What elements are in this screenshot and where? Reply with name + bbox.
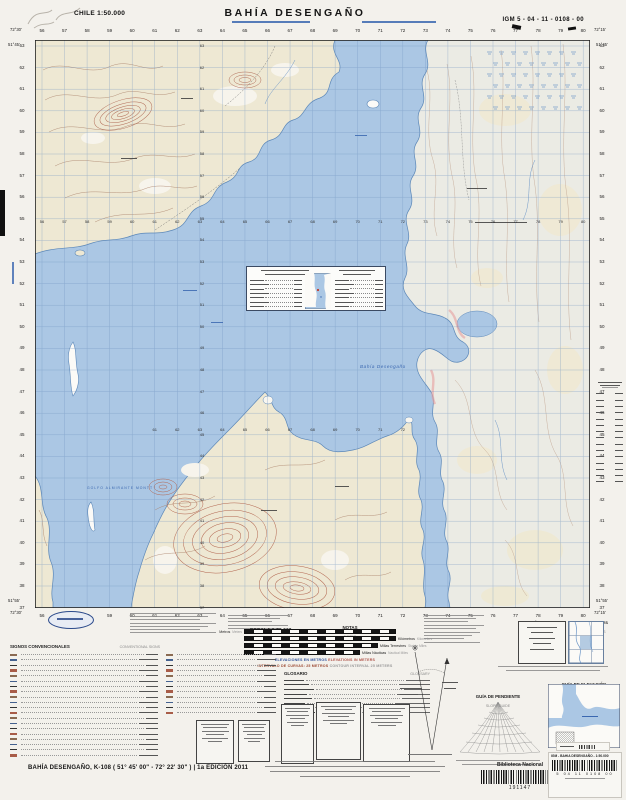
margin-note-right	[362, 21, 436, 23]
margin-note-left	[232, 21, 310, 23]
grid-number: 40	[599, 541, 604, 546]
grid-number: 49	[200, 346, 204, 350]
grid-number: 61	[153, 428, 157, 432]
grid-number: 54	[599, 238, 604, 243]
grid-number: 71	[378, 29, 383, 34]
grid-number: 61	[200, 87, 204, 91]
grid-number: 60	[599, 109, 604, 114]
grid-number: 57	[19, 173, 24, 178]
grid-number: 68	[310, 614, 315, 619]
grid-number: 62	[175, 428, 179, 432]
corner-coord: 72°30'	[10, 610, 22, 615]
grid-number: 66	[265, 220, 269, 224]
legend-column	[10, 652, 158, 758]
grid-number: 60	[130, 220, 134, 224]
igm-sticker: IGM - BAHIA DESENGAÑO - 1:50.000 5 04 11…	[548, 752, 622, 798]
grid-number: 38	[599, 584, 604, 589]
grid-number: 44	[19, 454, 24, 459]
grid-number: 48	[599, 368, 604, 373]
grid-number: 49	[19, 346, 24, 351]
grid-number: 58	[19, 152, 24, 157]
grid-number: 78	[536, 220, 540, 224]
grid-number: 42	[200, 498, 204, 502]
grid-number: 67	[288, 220, 292, 224]
grid-number: 39	[200, 562, 204, 566]
grid-number: 46	[19, 411, 24, 416]
grid-number: 51	[19, 303, 24, 308]
grid-number: 60	[200, 109, 204, 113]
grid-number: 56	[19, 195, 24, 200]
grid-number: 56	[599, 195, 604, 200]
corner-coord: 72°15'	[594, 27, 606, 32]
grid-number: 38	[200, 584, 204, 588]
grid-number: 69	[333, 428, 337, 432]
grid-number: 46	[200, 411, 204, 415]
grid-number: 59	[200, 130, 204, 134]
conversion-table	[596, 382, 623, 485]
fine-print	[424, 632, 486, 645]
reference-inset-box	[246, 266, 386, 311]
note-box	[281, 704, 314, 764]
igm-logo	[48, 611, 94, 629]
grid-number: 69	[333, 220, 337, 224]
note-box	[238, 720, 270, 762]
corner-coord: 51°55'	[8, 598, 20, 603]
grid-number: 39	[19, 562, 24, 567]
grid-number: 56	[39, 29, 44, 34]
margin-vertical-note	[12, 262, 14, 284]
grid-number: 63	[198, 428, 202, 432]
grid-number: 78	[536, 29, 541, 34]
grid-number: 62	[599, 65, 604, 70]
grid-number: 64	[220, 428, 224, 432]
grid-number: 61	[599, 87, 604, 92]
map-canvas	[35, 40, 590, 608]
grid-number: 58	[85, 220, 89, 224]
sticker-barcode	[552, 760, 618, 771]
corner-coord: 72°30'	[10, 27, 22, 32]
map-area: Bahía Desengaño GOLFO ALMIRANTE MONTT 56…	[35, 40, 590, 608]
grid-number: 79	[558, 29, 563, 34]
grid-number: 44	[200, 454, 204, 458]
grid-number: 48	[19, 368, 24, 373]
grid-number: 66	[265, 29, 270, 34]
grid-number: 47	[200, 390, 204, 394]
grid-number: 41	[200, 519, 204, 523]
grid-number: 41	[599, 519, 604, 524]
grid-number: 54	[200, 238, 204, 242]
grid-number: 45	[19, 433, 24, 438]
publisher-imprint	[130, 613, 218, 635]
grid-number: 57	[200, 174, 204, 178]
grid-number: 74	[446, 220, 450, 224]
grid-number: 51	[200, 303, 204, 307]
grid-number: 54	[19, 238, 24, 243]
corner-coord: 51°45'	[596, 42, 608, 47]
grid-number: 63	[19, 44, 24, 49]
grid-number: 64	[220, 614, 225, 619]
grid-number: 58	[200, 152, 204, 156]
grid-number: 75	[468, 29, 473, 34]
grid-number: 64	[220, 29, 225, 34]
grid-number: 79	[558, 220, 562, 224]
grid-number: 53	[599, 260, 604, 265]
grid-number: 73	[423, 220, 427, 224]
grid-number: 72	[401, 428, 405, 432]
grid-number: 61	[153, 220, 157, 224]
note-box	[196, 720, 234, 764]
grid-number: 50	[200, 325, 204, 329]
grid-number: 53	[200, 260, 204, 264]
grid-number: 55	[19, 217, 24, 222]
grid-number: 62	[175, 220, 179, 224]
corner-coord: 51°45'	[8, 42, 20, 47]
grid-number: 43	[200, 476, 204, 480]
grid-number: 70	[355, 428, 359, 432]
grid-number: 72	[400, 29, 405, 34]
grid-number: 56	[200, 195, 204, 199]
grid-number: 71	[378, 220, 382, 224]
grid-number: 76	[490, 614, 495, 619]
grid-number: 63	[200, 44, 204, 48]
grid-number: 45	[200, 433, 204, 437]
grid-number: 58	[599, 152, 604, 157]
grid-number: 56	[39, 614, 44, 619]
grid-number: 42	[599, 497, 604, 502]
grid-number: 42	[19, 497, 24, 502]
grid-number: 50	[599, 325, 604, 330]
grid-number: 49	[599, 346, 604, 351]
sticker-tab	[556, 742, 610, 751]
slope-guide-diagram	[452, 696, 544, 758]
sheet-code: IGM 5 - 04 - 11 - 0108 - 00	[502, 17, 584, 23]
scale-bar-statute-miles	[244, 643, 378, 647]
grid-number: 70	[355, 29, 360, 34]
grid-number: 40	[200, 541, 204, 545]
grid-number: 40	[19, 541, 24, 546]
grid-number: 59	[107, 614, 112, 619]
bay-label: Bahía Desengaño	[360, 364, 406, 369]
grid-number: 75	[468, 220, 472, 224]
grid-number: 72	[401, 220, 405, 224]
grid-number: 41	[19, 519, 24, 524]
grid-number: 66	[265, 428, 269, 432]
adjoining-sheets-index	[568, 621, 604, 664]
grid-number: 62	[175, 29, 180, 34]
sticker-numbers: 5 04 11 0108 00	[551, 772, 619, 776]
scale-bar-km	[244, 636, 396, 640]
grid-number: 68	[310, 220, 314, 224]
grid-number: 80	[581, 29, 586, 34]
fine-print	[424, 615, 486, 631]
grid-number: 77	[513, 29, 518, 34]
grid-number: 55	[200, 217, 204, 221]
grid-number: 71	[378, 614, 383, 619]
grid-number: 76	[491, 220, 495, 224]
signos-heading: SIGNOS CONVENCIONALES CONVENTIONAL SIGNS	[10, 644, 160, 649]
grid-number: 62	[19, 65, 24, 70]
grid-number: 37	[200, 606, 204, 610]
scan-artifact	[0, 190, 5, 236]
grid-number: 52	[599, 281, 604, 286]
grid-number: 56	[40, 220, 44, 224]
grid-number: 64	[220, 220, 224, 224]
grid-number: 74	[445, 29, 450, 34]
grid-number: 52	[200, 282, 204, 286]
grid-number: 50	[19, 325, 24, 330]
grid-number: 59	[19, 130, 24, 135]
grid-number: 55	[599, 217, 604, 222]
grid-number: 39	[599, 562, 604, 567]
grid-number: 48	[200, 368, 204, 372]
grid-number: 59	[107, 220, 111, 224]
grid-number: 58	[85, 29, 90, 34]
grid-number: 38	[19, 584, 24, 589]
sticker-title: IGM - BAHIA DESENGAÑO - 1:50.000	[551, 754, 619, 758]
grid-number: 60	[130, 29, 135, 34]
grid-number: 73	[423, 29, 428, 34]
grid-number: 47	[19, 389, 24, 394]
grid-number: 76	[490, 29, 495, 34]
grid-number: 71	[378, 428, 382, 432]
grid-number: 43	[19, 476, 24, 481]
fold-mark	[568, 26, 576, 30]
grid-number: 62	[200, 66, 204, 70]
grid-number: 59	[599, 130, 604, 135]
grid-number: 52	[19, 281, 24, 286]
legend-column	[166, 652, 276, 716]
grid-number: 53	[19, 260, 24, 265]
grid-number: 70	[355, 220, 359, 224]
grid-number: 68	[310, 428, 314, 432]
grid-number: 61	[152, 29, 157, 34]
inset-minimap	[305, 273, 331, 309]
grid-number: 72	[400, 614, 405, 619]
grid-number: 69	[333, 29, 338, 34]
grid-number: 60	[19, 109, 24, 114]
grid-number: 65	[243, 220, 247, 224]
grid-number: 67	[288, 428, 292, 432]
grid-number: 59	[107, 29, 112, 34]
grid-number: 63	[197, 29, 202, 34]
map-sheet-scan: CHILE 1:50.000 BAHÍA DESENGAÑO IGM 5 - 0…	[0, 0, 626, 800]
grid-number: 67	[288, 29, 293, 34]
grid-number: 65	[243, 428, 247, 432]
corner-coord: 51°55'	[596, 598, 608, 603]
grid-number: 57	[62, 29, 67, 34]
scale-bar-meters	[244, 629, 396, 633]
note-box	[316, 702, 361, 760]
grid-number: 57	[599, 173, 604, 178]
grid-number: 68	[310, 29, 315, 34]
grid-number: 77	[513, 220, 517, 224]
elevation-guide-map	[548, 684, 620, 748]
grid-number: 57	[62, 220, 66, 224]
gulf-label: GOLFO ALMIRANTE MONTT	[87, 486, 153, 490]
grid-number: 61	[19, 87, 24, 92]
footer-sheet-line: BAHÍA DESENGAÑO, K-108 ( 51° 45' 00" - 7…	[28, 765, 248, 771]
grid-number: 80	[581, 220, 585, 224]
grid-number: 51	[599, 303, 604, 308]
grid-number: 65	[242, 29, 247, 34]
